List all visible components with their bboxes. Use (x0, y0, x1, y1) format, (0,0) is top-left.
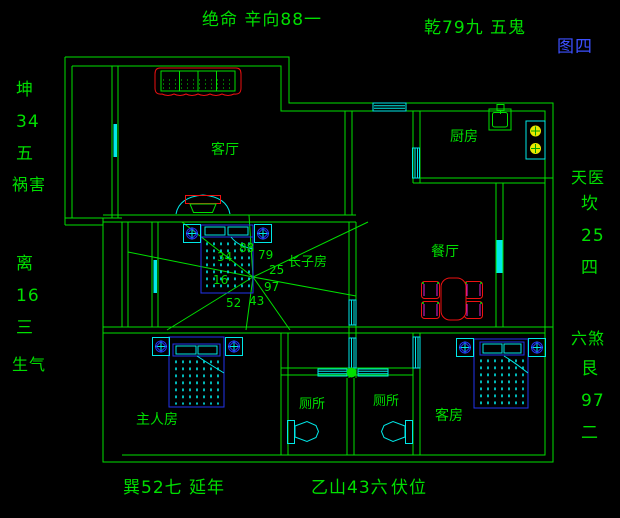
kitchen-side-window (413, 148, 420, 178)
kitchen-sink (489, 105, 511, 131)
compass-number-43: 43 (249, 295, 264, 307)
room-label-guest: 客房 (435, 409, 463, 423)
door-pivot-dot (347, 368, 357, 378)
label-right-tianyi: 天医 (571, 170, 605, 186)
dining-chair (422, 302, 440, 319)
compass-number-25: 25 (269, 264, 284, 276)
room-label-eldest-son: 长子房 (288, 256, 327, 269)
room-label-kitchen: 厨房 (450, 130, 478, 144)
nightstand (153, 338, 170, 356)
nightstand (184, 225, 201, 243)
figure-number-label: 图四 (557, 39, 593, 56)
sofa (155, 68, 241, 96)
compass-number-97: 97 (264, 281, 279, 293)
label-left-kun: 坤 (16, 82, 34, 99)
label-left-huohai: 祸害 (12, 177, 46, 193)
door-window-symbols (114, 103, 503, 378)
label-right-25: 25 (581, 228, 605, 245)
label-bottom-yishan43: 乙山43六 (311, 480, 389, 497)
dining-chair (422, 282, 440, 299)
tv-cabinet (176, 195, 230, 214)
label-left-san: 三 (16, 320, 34, 337)
room-label-toilet-left: 厕所 (299, 398, 325, 411)
label-bottom-fuwei: 伏位 (391, 480, 427, 497)
stove (526, 121, 545, 159)
compass-number-88: 88 (239, 242, 254, 254)
master-door (349, 338, 356, 368)
entry-window (373, 103, 406, 111)
dining-table-set (422, 278, 483, 320)
label-left-34: 34 (16, 114, 40, 131)
compass-number-34: 34 (217, 251, 232, 263)
label-right-kan: 坎 (581, 196, 599, 213)
label-top-center: 绝命 辛向88一 (202, 12, 322, 29)
label-left-16: 16 (16, 288, 40, 305)
nightstand (529, 339, 546, 357)
label-top-right: 乾79九 五鬼 (424, 20, 526, 37)
floorplan-canvas: 绝命 辛向88一 乾79九 五鬼 图四 坤 34 五 祸害 离 16 三 生气 … (0, 0, 620, 518)
dining-chair (465, 282, 483, 299)
guest-door (413, 337, 420, 368)
room-label-master: 主人房 (136, 413, 178, 427)
bed-master (153, 337, 243, 407)
room-label-dining: 餐厅 (431, 245, 459, 259)
closet-door-window (154, 260, 158, 293)
dining-window (497, 240, 503, 273)
toilet-fixture-right (382, 421, 413, 444)
nightstand (226, 338, 243, 356)
room-label-toilet-right: 厕所 (373, 395, 399, 408)
label-left-shengqi: 生气 (12, 357, 46, 373)
balcony-door-window (114, 124, 118, 157)
nightstand (457, 339, 474, 357)
corridor-window-eldest (349, 300, 356, 325)
label-right-97: 97 (581, 393, 605, 410)
label-bottom-xun52: 巽52七 (123, 480, 183, 497)
label-right-er: 二 (581, 425, 599, 442)
nightstand (255, 225, 272, 243)
toilet-fixture-left (288, 421, 319, 444)
label-right-gen: 艮 (581, 361, 599, 378)
compass-number-52: 52 (226, 297, 241, 309)
compass-number-79: 79 (258, 249, 273, 261)
room-label-living: 客厅 (211, 143, 239, 157)
bed-guest (457, 339, 546, 409)
dining-chair (465, 302, 483, 319)
compass-number-16: 16 (213, 274, 228, 286)
label-bottom-yannian: 延年 (189, 480, 225, 497)
label-right-si: 四 (581, 260, 599, 277)
label-right-liusha: 六煞 (571, 331, 605, 347)
label-left-li: 离 (16, 256, 34, 273)
label-left-wu: 五 (16, 146, 34, 163)
